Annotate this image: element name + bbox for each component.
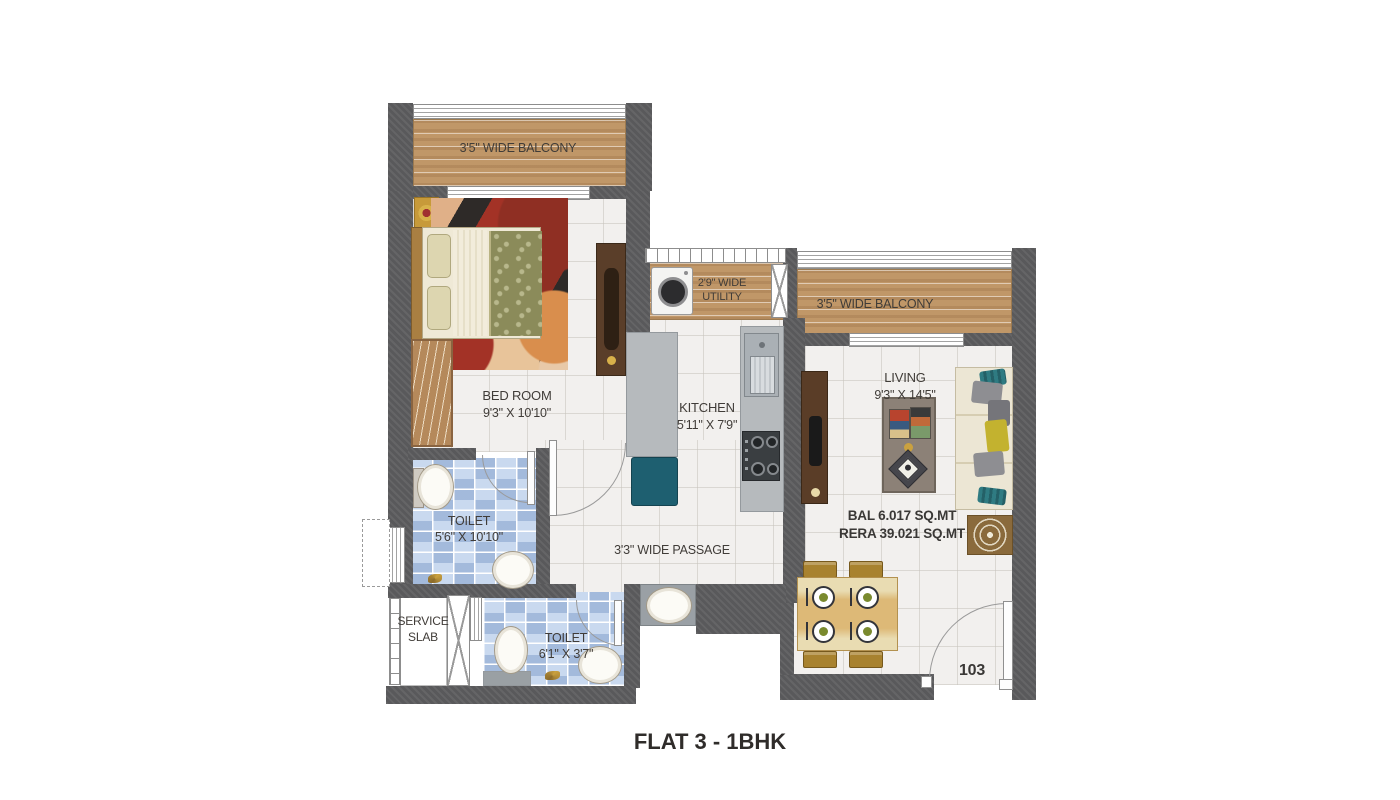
- kitchen-name: KITCHEN: [657, 400, 757, 417]
- toilet-common-size: 6'1" X 3'7": [516, 646, 616, 662]
- coffee-table-books: [889, 409, 910, 439]
- toilet-main-door-leaf: [527, 451, 535, 505]
- balcony-area: BAL 6.017 SQ.MT: [822, 507, 982, 525]
- toilet-main-wc: [417, 464, 454, 510]
- toilet-common-jamb: [470, 597, 482, 641]
- dining-plate: [856, 586, 879, 609]
- wall-toilet-common-top: [388, 584, 576, 598]
- sofa-pillow-teal: [977, 486, 1007, 505]
- wall-living-bottom-connector: [780, 603, 794, 675]
- dining-plate: [812, 586, 835, 609]
- coffee-table: [882, 397, 936, 493]
- kitchen-sink-faucet: [759, 342, 765, 348]
- stove-burner: [767, 463, 779, 475]
- toilet-main-label: TOILET 5'6" X 10'10": [414, 513, 524, 546]
- dining-plate: [812, 620, 835, 643]
- dresser-unit: [596, 243, 626, 376]
- dining-chair: [803, 561, 837, 578]
- tv-screen: [809, 416, 822, 466]
- wall-bottom-left: [386, 686, 636, 704]
- kitchen-stove: [742, 431, 780, 481]
- living-name: LIVING: [845, 370, 965, 387]
- kitchen-sink: [744, 333, 779, 397]
- living-label: LIVING 9'3" X 14'5": [845, 370, 965, 403]
- wall-toilet-common-right: [624, 584, 640, 688]
- area-statement: BAL 6.017 SQ.MT RERA 39.021 SQ.MT: [822, 507, 982, 542]
- wall-bedroom-top-right-stub: [590, 186, 626, 199]
- wall-living-window-left-stub: [805, 333, 849, 346]
- dining-cutlery: [806, 622, 808, 640]
- toilet-common-name: TOILET: [516, 630, 616, 646]
- bed-blanket: [489, 231, 542, 336]
- flat-number: 103: [948, 661, 996, 682]
- wall-niche-block: [696, 584, 786, 634]
- balcony-right-railing: [797, 251, 1012, 269]
- washing-machine-knob: [684, 271, 688, 275]
- dining-plate: [856, 620, 879, 643]
- kitchen-counter-teal: [631, 457, 678, 506]
- living-size: 9'3" X 14'5": [845, 387, 965, 403]
- dresser-decor: [607, 356, 616, 365]
- toilet-main-decor: [428, 574, 442, 583]
- wall-toilet-main-right: [536, 448, 550, 595]
- toilet-main-vent-window: [388, 527, 405, 583]
- dining-cutlery: [850, 622, 852, 640]
- coffee-table-tray: [888, 449, 928, 489]
- entry-door-hinge-block: [999, 679, 1013, 690]
- service-slab-line1: SERVICE: [394, 614, 452, 630]
- toilet-common-decor: [545, 671, 560, 680]
- wall-living-bottom: [780, 674, 934, 700]
- service-slab-label: SERVICE SLAB: [394, 614, 452, 645]
- utility-label-line1: 2'9" WIDE: [688, 276, 756, 290]
- sofa-pillow-gray: [973, 451, 1005, 478]
- tv-unit-decor: [811, 488, 820, 497]
- dresser-panel: [604, 268, 619, 350]
- bed: [422, 227, 541, 339]
- passage-basin: [646, 587, 692, 624]
- dining-cutlery: [806, 588, 808, 606]
- bed-pillow: [427, 286, 451, 330]
- utility-label: 2'9" WIDE UTILITY: [688, 276, 756, 305]
- washing-machine-drum: [658, 277, 688, 307]
- passage-label: 3'3" WIDE PASSAGE: [582, 542, 762, 558]
- bed-sheet: [453, 230, 487, 336]
- balcony-right-label: 3'5" WIDE BALCONY: [775, 296, 975, 312]
- kitchen-counter-left: [626, 332, 678, 457]
- utility-balustrade: [645, 248, 786, 263]
- bedroom-label: BED ROOM 9'3" X 10'10": [447, 388, 587, 421]
- plan-title: FLAT 3 - 1BHK: [560, 728, 860, 757]
- living-balcony-window: [849, 333, 964, 347]
- wall-balcony-top-left-pillar: [388, 103, 413, 191]
- wall-toilet-main-top: [408, 448, 476, 460]
- coffee-table-books: [910, 407, 931, 439]
- wall-balcony-top-right-pillar: [626, 103, 652, 191]
- dining-cutlery: [850, 588, 852, 606]
- toilet-main-name: TOILET: [414, 513, 524, 529]
- service-slab-line2: SLAB: [394, 630, 452, 646]
- entry-door-stop: [921, 676, 932, 688]
- bedroom-size: 9'3" X 10'10": [447, 405, 587, 421]
- balcony-top-railing: [413, 104, 626, 119]
- utility-label-line2: UTILITY: [688, 290, 756, 304]
- bedroom-name: BED ROOM: [447, 388, 587, 405]
- wall-living-window-right-stub: [964, 333, 1012, 346]
- stove-burner: [766, 436, 778, 448]
- kitchen-label: KITCHEN 5'11" X 7'9": [657, 400, 757, 433]
- bedroom-door-leaf: [549, 440, 557, 516]
- stove-knobs: [745, 440, 748, 474]
- dining-table: [797, 577, 898, 651]
- stove-burner: [751, 436, 764, 449]
- stove-burner: [751, 462, 765, 476]
- kitchen-size: 5'11" X 7'9": [657, 417, 757, 433]
- tv-unit: [801, 371, 828, 504]
- dining-chair: [803, 651, 837, 668]
- entry-door-leaf: [1003, 601, 1013, 683]
- dining-chair: [849, 651, 883, 668]
- duct-dashed-outline: [362, 519, 390, 587]
- dining-chair: [849, 561, 883, 578]
- toilet-main-basin: [492, 551, 534, 589]
- balcony-top-label: 3'5" WIDE BALCONY: [418, 140, 618, 156]
- floor-plan: 3'5" WIDE BALCONY 2'9" WIDE UTILITY 3'5"…: [0, 0, 1400, 800]
- wall-right: [1012, 248, 1036, 700]
- bed-pillow: [427, 234, 451, 278]
- toilet-common-label: TOILET 6'1" X 3'7": [516, 630, 616, 663]
- toilet-main-size: 5'6" X 10'10": [414, 529, 524, 545]
- rera-area: RERA 39.021 SQ.MT: [822, 525, 982, 543]
- sofa-pillow-yellow: [984, 419, 1009, 453]
- kitchen-sink-basin: [750, 356, 775, 394]
- washing-machine: [651, 267, 693, 315]
